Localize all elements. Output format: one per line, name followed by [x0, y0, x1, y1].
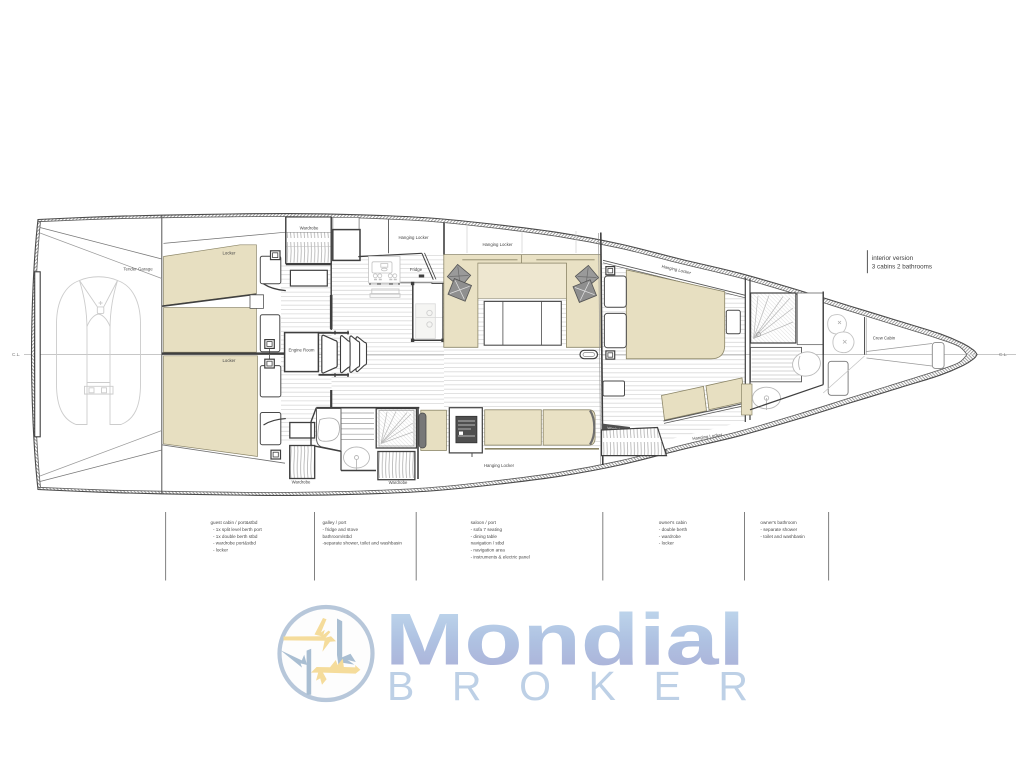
svg-text:Hanging Locker: Hanging Locker [482, 242, 513, 247]
svg-text:- navigation area: - navigation area [471, 548, 506, 553]
svg-text:-separate shower, toilet and w: -separate shower, toilet and washbasin [323, 541, 403, 546]
svg-text:Engine Room: Engine Room [288, 348, 314, 353]
svg-text:- locker: - locker [659, 541, 675, 546]
svg-text:guest cabin / port&stbd: guest cabin / port&stbd [211, 520, 258, 525]
svg-text:Tender Garage: Tender Garage [123, 267, 153, 272]
svg-text:- double berth: - double berth [659, 527, 688, 532]
svg-text:Fridge: Fridge [410, 267, 423, 272]
svg-text:owner's bathroom: owner's bathroom [760, 520, 797, 525]
svg-text:- separate shower: - separate shower [760, 527, 797, 532]
svg-text:- dining table: - dining table [471, 534, 498, 539]
svg-text:interior version: interior version [872, 255, 914, 262]
svg-text:- 1x double berth stbd: - 1x double berth stbd [213, 534, 258, 539]
svg-text:Wardrobe: Wardrobe [300, 226, 319, 231]
svg-text:- fridge and stove: - fridge and stove [323, 527, 359, 532]
svg-text:saloon / port: saloon / port [471, 520, 497, 525]
svg-text:- locker: - locker [213, 548, 229, 553]
svg-text:navigation / stbd: navigation / stbd [471, 541, 505, 546]
svg-text:- wardrobe port&stbd: - wardrobe port&stbd [213, 541, 256, 546]
svg-text:3 cabins 2 bathrooms: 3 cabins 2 bathrooms [872, 264, 932, 271]
svg-text:Locker: Locker [223, 358, 236, 363]
svg-text:owner's cabin: owner's cabin [659, 520, 687, 525]
svg-text:galley / port: galley / port [323, 520, 347, 525]
svg-text:bathroom/stbd: bathroom/stbd [323, 534, 353, 539]
svg-text:Wardrobe: Wardrobe [292, 480, 311, 485]
svg-text:Hanging Locker: Hanging Locker [398, 235, 429, 240]
svg-text:- sofa 7 seating: - sofa 7 seating [471, 527, 503, 532]
svg-text:C.L.: C.L. [999, 352, 1007, 357]
svg-text:- toilet and washbasin: - toilet and washbasin [760, 534, 805, 539]
svg-text:Wardrobe: Wardrobe [389, 480, 408, 485]
svg-text:Locker: Locker [223, 250, 236, 255]
svg-text:- 1x split level berth port: - 1x split level berth port [213, 527, 262, 532]
svg-text:Crew Cabin: Crew Cabin [873, 335, 896, 340]
svg-text:Hanging Locker: Hanging Locker [484, 463, 515, 468]
svg-text:- instruments & electric panel: - instruments & electric panel [471, 555, 530, 560]
svg-text:Mondial: Mondial [385, 600, 745, 681]
svg-text:- wardrobe: - wardrobe [659, 534, 681, 539]
svg-text:C.L.: C.L. [12, 352, 20, 357]
